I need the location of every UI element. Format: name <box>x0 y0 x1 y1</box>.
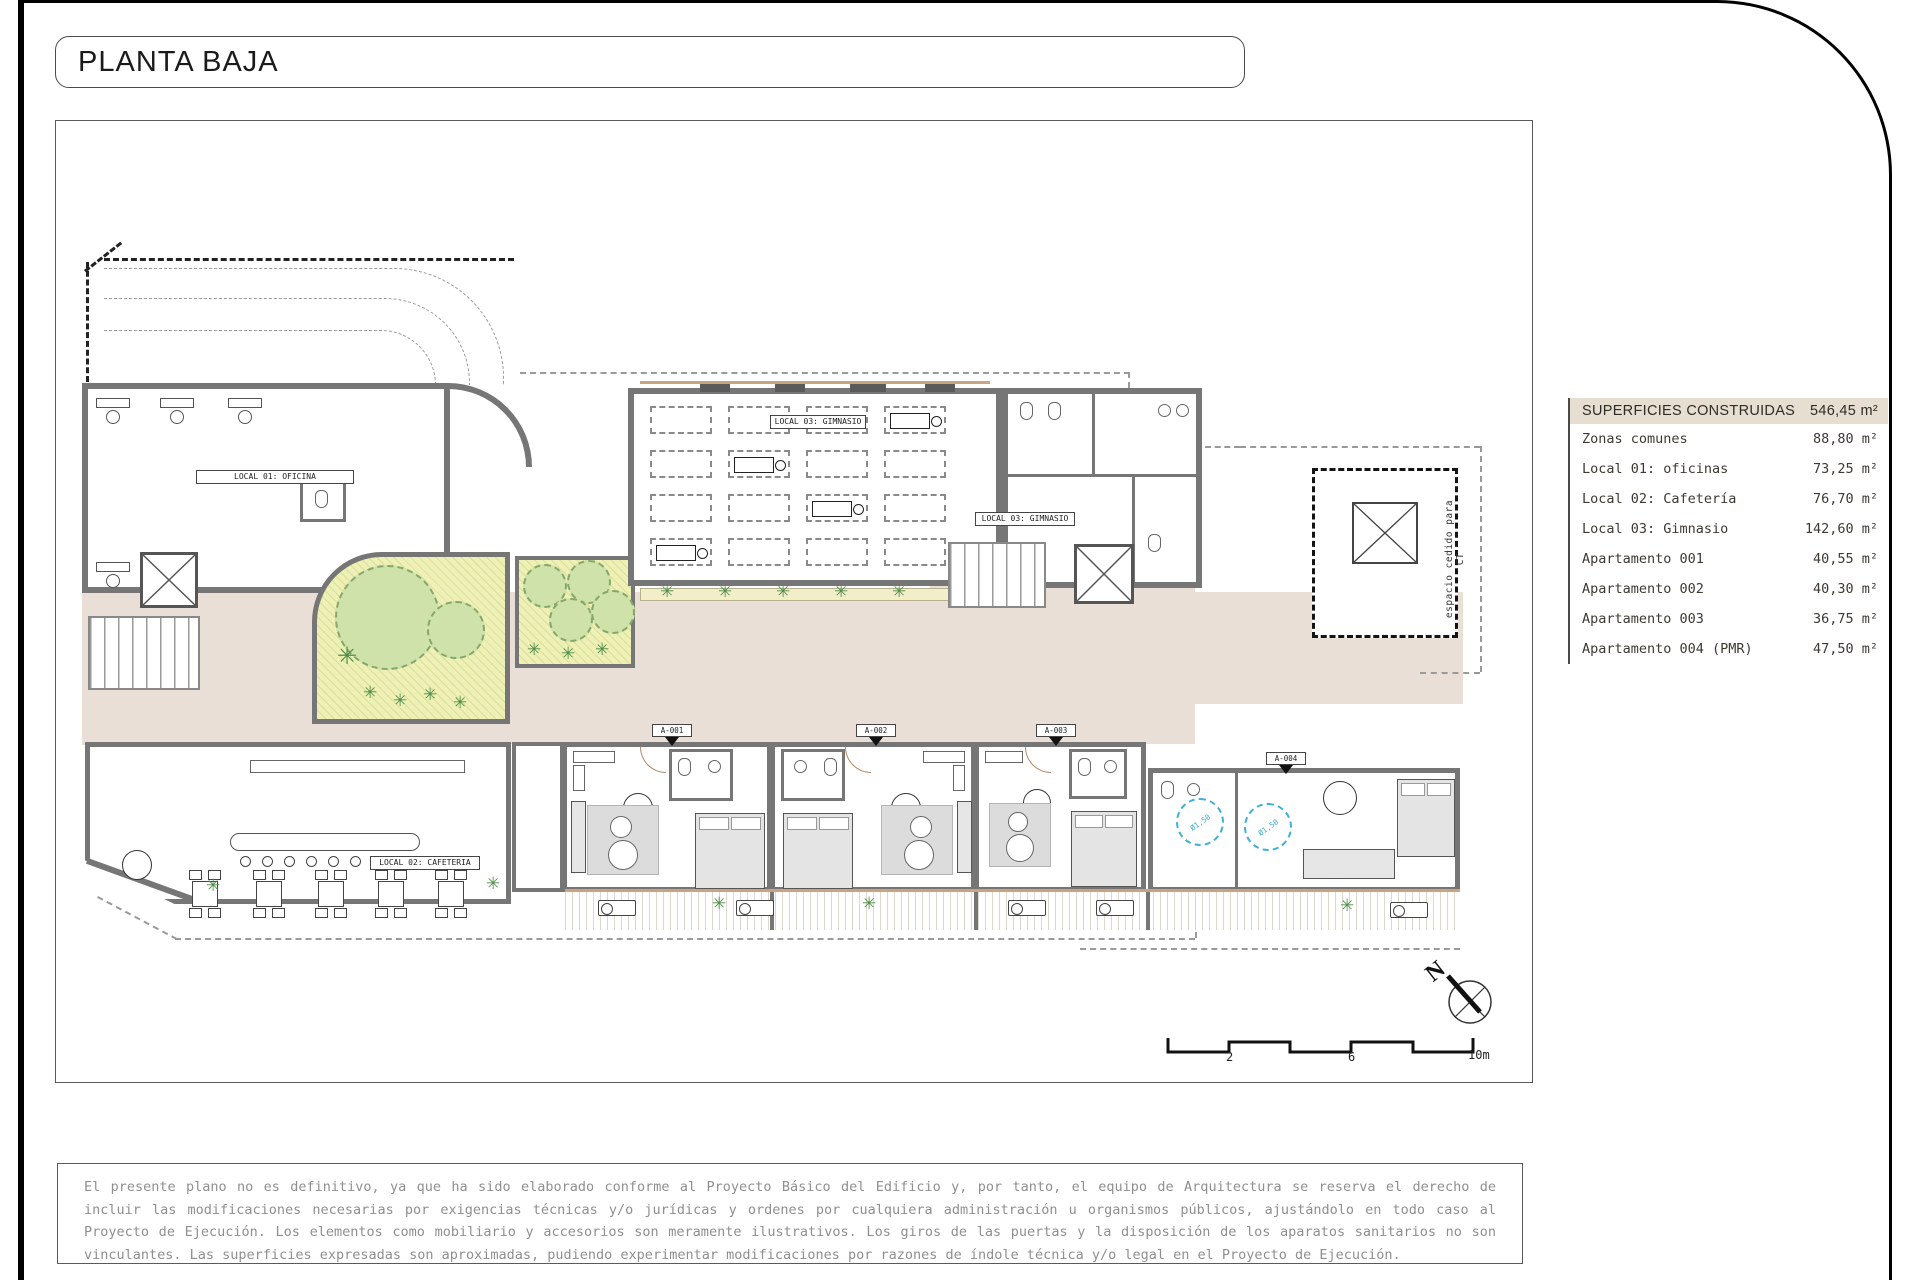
turning-circle-label: Ø1,50 <box>1188 812 1212 832</box>
legend-label: Apartamento 003 <box>1582 611 1704 627</box>
legend-label: Zonas comunes <box>1582 431 1688 447</box>
toilet-icon <box>1148 534 1161 552</box>
sofa <box>1303 849 1395 879</box>
sink-icon <box>708 760 721 773</box>
legend-row: Apartamento 004 (PMR) 47,50 m² <box>1570 634 1888 664</box>
sofa <box>957 801 972 873</box>
bathroom <box>781 749 845 801</box>
title-box: PLANTA BAJA <box>55 36 1245 88</box>
turning-circle-label: Ø1,50 <box>1256 817 1280 837</box>
plant-icon: ✳ <box>660 584 674 600</box>
exercise-bench-icon <box>656 545 696 561</box>
legend-row: Zonas comunes 88,80 m² <box>1570 424 1888 454</box>
gym-mat <box>728 494 790 522</box>
legend-label: Apartamento 002 <box>1582 581 1704 597</box>
terrace-divider <box>1146 892 1150 930</box>
seat-icon <box>910 816 932 838</box>
legend-value: 36,75 m² <box>1813 611 1878 627</box>
legend-header-row: SUPERFICIES CONSTRUIDAS 546,45 m² <box>1570 398 1888 424</box>
window <box>925 384 955 392</box>
plant-icon: ✳ <box>393 693 407 709</box>
plant-icon: ✳ <box>1340 898 1354 914</box>
bar-counter <box>230 833 420 851</box>
ct-shaft-icon <box>1352 502 1418 564</box>
kitchen-counter <box>573 765 585 791</box>
round-table <box>1323 781 1357 815</box>
sink-icon <box>1158 404 1171 417</box>
bar-stool <box>240 856 251 867</box>
cafe-table-group <box>432 870 470 918</box>
lounge-chair <box>1390 902 1428 918</box>
plant-icon: ✳ <box>595 642 609 658</box>
gym-mat <box>650 450 712 478</box>
gym-mat <box>884 494 946 522</box>
kitchen-counter <box>250 760 465 773</box>
legend-label: Local 02: Cafetería <box>1582 491 1736 507</box>
apartment-002-label: A-002 <box>856 724 896 737</box>
exercise-bench-icon <box>812 501 852 517</box>
sink-icon <box>1104 760 1117 773</box>
stairs-left <box>88 616 200 690</box>
plan-sheet: PLANTA BAJA LOCAL 01: OFICINA <box>0 0 1920 1280</box>
cafe-table-group <box>312 870 350 918</box>
plant-icon: ✳ <box>862 896 876 912</box>
bar-stool <box>284 856 295 867</box>
window <box>850 384 886 392</box>
seat-icon <box>608 840 638 870</box>
toilet-icon <box>1161 781 1174 799</box>
plant-icon: ✳ <box>718 584 732 600</box>
gym-mat <box>650 494 712 522</box>
bar-stool <box>328 856 339 867</box>
apartment-001 <box>562 742 772 892</box>
cafeteria-label: LOCAL 02: CAFETERIA <box>370 856 480 870</box>
partition-wall <box>1008 474 1196 477</box>
lounge-chair <box>736 900 774 916</box>
legend-value: 40,55 m² <box>1813 551 1878 567</box>
double-bed <box>1397 779 1455 857</box>
north-label: N <box>1421 956 1451 988</box>
apartment-003 <box>974 742 1146 892</box>
scale-tick-6: 6 <box>1348 1050 1355 1064</box>
entrance-arrow-icon <box>665 737 679 746</box>
terrace-divider <box>974 892 978 930</box>
plant-icon: ✳ <box>561 646 575 662</box>
apartment-002 <box>770 742 976 892</box>
plot-outline-bottom <box>175 938 1195 940</box>
legend-label: Local 03: Gimnasio <box>1582 521 1728 537</box>
entrance-arrow-icon <box>1279 765 1293 774</box>
tree-icon <box>591 590 635 634</box>
legend-row: Apartamento 003 36,75 m² <box>1570 604 1888 634</box>
apartment-001-label: A-001 <box>652 724 692 737</box>
bathroom <box>669 749 733 801</box>
entrance-arrow-icon <box>1049 737 1063 746</box>
scale-tick-10m: 10m <box>1468 1048 1490 1062</box>
plant-icon: ✳ <box>206 878 220 894</box>
gym-mat <box>728 538 790 566</box>
gym-mat-grid <box>650 406 960 566</box>
lounge-chair <box>598 900 636 916</box>
plant-icon: ✳ <box>834 584 848 600</box>
scale-tick-2: 2 <box>1226 1050 1233 1064</box>
entrance-arrow-icon <box>869 737 883 746</box>
disclaimer-text: El presente plano no es definitivo, ya q… <box>84 1176 1496 1264</box>
sink-icon <box>794 760 807 773</box>
areas-legend: SUPERFICIES CONSTRUIDAS 546,45 m² Zonas … <box>1568 398 1888 664</box>
plant-icon: ✳ <box>892 584 906 600</box>
sink-icon <box>1187 783 1200 796</box>
plant-icon: ✳ <box>337 649 357 665</box>
plot-outline-top-right <box>1240 446 1480 448</box>
kitchen-counter <box>923 751 965 763</box>
gym-mat <box>806 538 868 566</box>
window <box>700 384 730 392</box>
sink-icon <box>1176 404 1189 417</box>
bar-stool <box>306 856 317 867</box>
storage-room <box>512 742 564 892</box>
office-wc-room <box>300 478 346 522</box>
toilet-icon <box>1078 758 1091 776</box>
legend-row: Local 01: oficinas 73,25 m² <box>1570 454 1888 484</box>
upper-floor-outline-top <box>104 258 514 261</box>
gym-label: LOCAL 03: GIMNASIO <box>770 415 866 429</box>
gym-mat <box>728 450 790 478</box>
plant-icon: ✳ <box>776 584 790 600</box>
plant-icon: ✳ <box>527 642 541 658</box>
gym-mat <box>806 494 868 522</box>
legend-value: 142,60 m² <box>1805 521 1878 537</box>
seat-icon <box>610 816 632 838</box>
office-desk <box>96 562 130 572</box>
kitchen-counter <box>985 751 1023 763</box>
office-desk <box>228 398 262 408</box>
seat-icon <box>1008 812 1028 832</box>
seat-icon <box>1006 834 1034 862</box>
plant-icon: ✳ <box>486 876 500 892</box>
legend-value: 88,80 m² <box>1813 431 1878 447</box>
stairs-right <box>948 542 1046 608</box>
disclaimer-box: El presente plano no es definitivo, ya q… <box>57 1163 1523 1264</box>
toilet-icon <box>315 490 328 508</box>
legend-value: 76,70 m² <box>1813 491 1878 507</box>
legend-row: Apartamento 002 40,30 m² <box>1570 574 1888 604</box>
upper-floor-outline-mid <box>520 372 1130 374</box>
gym-label-2: LOCAL 03: GIMNASIO <box>975 512 1075 526</box>
tree-icon <box>427 601 485 659</box>
exercise-bench-icon <box>890 413 930 429</box>
rug <box>989 803 1051 867</box>
plot-outline-right-bottom <box>1420 672 1480 674</box>
gym-mat <box>884 450 946 478</box>
plant-icon: ✳ <box>363 685 377 701</box>
ct-space-label: espacio cedido para CT <box>1444 494 1466 624</box>
bathroom <box>1069 749 1127 799</box>
bar-stool <box>262 856 273 867</box>
kitchen-counter <box>953 765 965 791</box>
apartment-004-label: A-004 <box>1266 752 1306 765</box>
double-bed <box>695 813 765 889</box>
partition-wall <box>1092 394 1095 474</box>
elevator-icon <box>140 552 198 608</box>
courtyard-garden: ✳ ✳ ✳ ✳ ✳ <box>312 552 510 724</box>
toilet-icon <box>1020 402 1033 420</box>
toilet-icon <box>678 758 691 776</box>
legend-label: Apartamento 004 (PMR) <box>1582 641 1753 657</box>
page-title: PLANTA BAJA <box>78 46 279 79</box>
legend-value: 47,50 m² <box>1813 641 1878 657</box>
round-table <box>122 850 152 880</box>
office-label: LOCAL 01: OFICINA <box>196 470 354 484</box>
plant-icon: ✳ <box>712 896 726 912</box>
legend-value: 73,25 m² <box>1813 461 1878 477</box>
legend-row: Local 02: Cafetería 76,70 m² <box>1570 484 1888 514</box>
double-bed <box>783 813 853 889</box>
office-desk <box>160 398 194 408</box>
gym-mat <box>650 406 712 434</box>
upper-floor-outline-left <box>86 262 89 382</box>
exercise-bench-icon <box>734 457 774 473</box>
gym-mat <box>884 538 946 566</box>
bar-stool <box>350 856 361 867</box>
lounge-chair <box>1096 900 1134 916</box>
apartment-003-label: A-003 <box>1036 724 1076 737</box>
seat-icon <box>904 840 934 870</box>
plot-outline-bottom-right <box>1080 948 1460 950</box>
gym-mat <box>806 450 868 478</box>
scale-bar <box>1160 1032 1490 1058</box>
cafe-table-group <box>250 870 288 918</box>
gym-mat <box>650 538 712 566</box>
legend-header-label: SUPERFICIES CONSTRUIDAS <box>1582 403 1795 419</box>
upper-floor-arc-3 <box>104 330 436 385</box>
plant-icon: ✳ <box>453 695 467 711</box>
cafe-table-group <box>372 870 410 918</box>
sofa <box>571 801 586 873</box>
plant-icon: ✳ <box>423 687 437 703</box>
accessibility-turning-circle: Ø1,50 <box>1176 798 1224 846</box>
lounge-chair <box>1008 900 1046 916</box>
elevator-icon <box>1074 544 1134 604</box>
legend-label: Local 01: oficinas <box>1582 461 1728 477</box>
plot-outline-right <box>1480 446 1482 672</box>
gym-mat <box>884 406 946 434</box>
legend-row: Local 03: Gimnasio 142,60 m² <box>1570 514 1888 544</box>
legend-label: Apartamento 001 <box>1582 551 1704 567</box>
rug <box>881 805 953 875</box>
rug <box>587 805 659 875</box>
toilet-icon <box>824 758 837 776</box>
tree-icon <box>549 598 593 642</box>
window <box>775 384 805 392</box>
legend-header-value: 546,45 m² <box>1810 403 1878 419</box>
courtyard-garden-2: ✳ ✳ ✳ <box>515 556 635 668</box>
accessibility-turning-circle: Ø1,50 <box>1244 803 1292 851</box>
office-desk <box>96 398 130 408</box>
legend-row: Apartamento 001 40,55 m² <box>1570 544 1888 574</box>
kitchen-counter <box>573 751 615 763</box>
toilet-icon <box>1048 402 1061 420</box>
legend-value: 40,30 m² <box>1813 581 1878 597</box>
double-bed <box>1071 811 1137 887</box>
partition-wall <box>1235 773 1238 887</box>
